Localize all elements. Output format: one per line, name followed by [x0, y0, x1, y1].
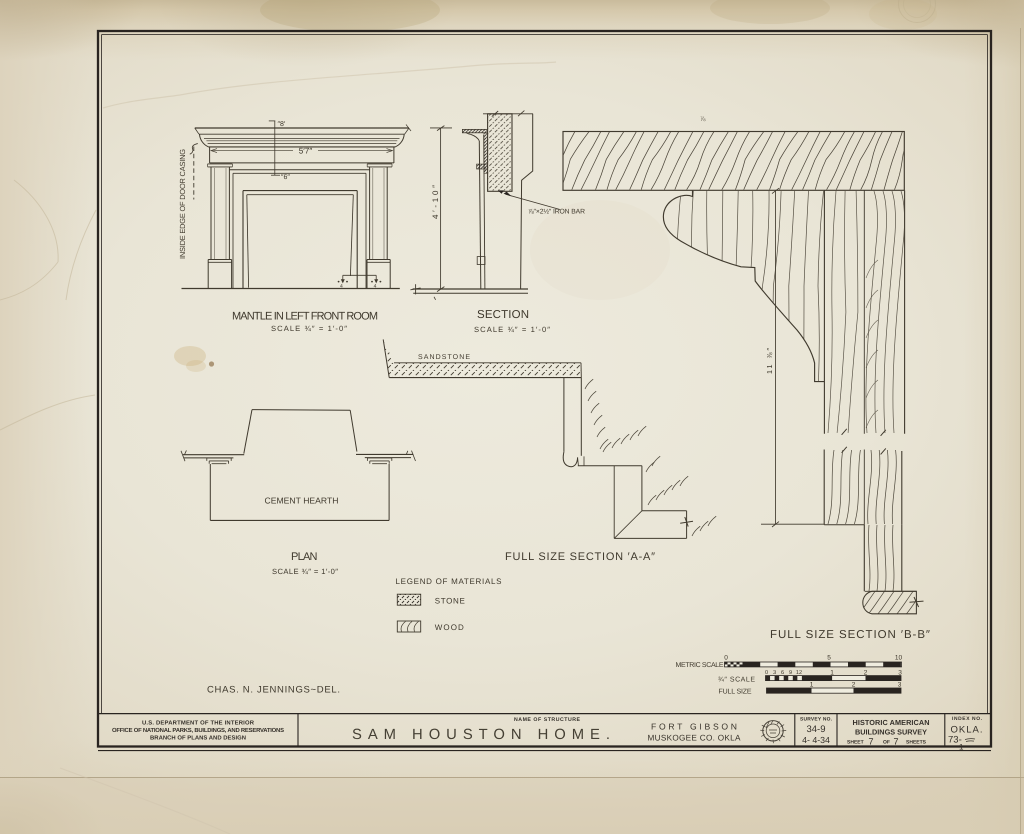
svg-text:10: 10 — [895, 655, 903, 662]
svg-text:2: 2 — [864, 669, 868, 676]
svg-text:FULL SIZE SECTION ′B-B″: FULL SIZE SECTION ′B-B″ — [770, 629, 930, 641]
svg-text:PLAN: PLAN — [291, 551, 319, 563]
svg-text:FORT GIBSON: FORT GIBSON — [651, 721, 737, 731]
svg-text:SHEET: SHEET — [847, 739, 864, 745]
svg-text:3: 3 — [898, 669, 902, 676]
svg-text:5: 5 — [827, 655, 831, 662]
svg-text:FULL SIZE: FULL SIZE — [719, 689, 752, 696]
svg-text:SANDSTONE: SANDSTONE — [418, 354, 470, 361]
svg-text:WOOD: WOOD — [435, 623, 464, 632]
svg-text:SECTION: SECTION — [477, 309, 531, 321]
svg-text:OF: OF — [883, 739, 890, 745]
svg-text:2: 2 — [852, 682, 856, 689]
svg-text:⅞: ⅞ — [700, 116, 706, 123]
svg-text:NAME OF STRUCTURE: NAME OF STRUCTURE — [514, 717, 581, 723]
svg-text:BRANCH OF PLANS AND DESIGN: BRANCH OF PLANS AND DESIGN — [150, 734, 246, 741]
svg-text:FULL SIZE SECTION ′A-A″: FULL SIZE SECTION ′A-A″ — [505, 551, 655, 563]
svg-text:STONE: STONE — [435, 596, 465, 605]
svg-text:7: 7 — [868, 737, 873, 747]
svg-text:5′7″: 5′7″ — [299, 147, 313, 156]
svg-text:CHAS. N. JENNINGS~DEL.: CHAS. N. JENNINGS~DEL. — [207, 684, 340, 695]
svg-text:3: 3 — [773, 670, 776, 676]
svg-text:1: 1 — [959, 742, 964, 751]
svg-text:1: 1 — [810, 682, 814, 689]
svg-text:″8′: ″8′ — [278, 121, 286, 128]
svg-text:OFFICE OF NATIONAL PARKS, BUIL: OFFICE OF NATIONAL PARKS, BUILDINGS, AND… — [112, 727, 284, 734]
svg-text:METRIC SCALE: METRIC SCALE — [676, 662, 724, 669]
svg-text:HISTORIC AMERICAN: HISTORIC AMERICAN — [853, 718, 930, 727]
svg-text:SCALE ¾″ = 1′-0″: SCALE ¾″ = 1′-0″ — [271, 324, 347, 333]
svg-text:U.S. DEPARTMENT OF THE INTERIO: U.S. DEPARTMENT OF THE INTERIOR — [142, 720, 255, 727]
svg-text:CEMENT HEARTH: CEMENT HEARTH — [265, 496, 339, 506]
svg-text:SURVEY NO.: SURVEY NO. — [800, 716, 833, 722]
svg-text:SAM HOUSTON HOME.: SAM HOUSTON HOME. — [352, 727, 610, 743]
svg-text:6: 6 — [781, 670, 784, 676]
svg-text:34-9: 34-9 — [806, 724, 825, 735]
svg-text:7: 7 — [893, 737, 898, 747]
svg-text:BUILDINGS SURVEY: BUILDINGS SURVEY — [855, 728, 927, 737]
svg-text:MUSKOGEE CO. OKLA: MUSKOGEE CO. OKLA — [648, 734, 742, 743]
svg-text:4′-10″: 4′-10″ — [431, 185, 440, 219]
svg-text:INDEX NO.: INDEX NO. — [952, 716, 983, 722]
svg-text:0: 0 — [765, 670, 768, 676]
svg-text:¾″ SCALE: ¾″ SCALE — [718, 676, 755, 683]
svg-text:1: 1 — [830, 669, 834, 676]
svg-text:11 ⅞″: 11 ⅞″ — [765, 348, 774, 374]
svg-text:12: 12 — [796, 670, 802, 676]
svg-text:0: 0 — [724, 655, 728, 662]
svg-text:SHEETS: SHEETS — [906, 739, 927, 745]
svg-text:MANTLE IN LEFT FRONT ROOM: MANTLE IN LEFT FRONT ROOM — [232, 311, 378, 323]
svg-text:INSIDE EDGE OF DOOR CASING: INSIDE EDGE OF DOOR CASING — [178, 149, 187, 259]
svg-text:SCALE ¾″ = 1′-0″: SCALE ¾″ = 1′-0″ — [474, 325, 550, 334]
svg-text:LEGEND OF MATERIALS: LEGEND OF MATERIALS — [396, 577, 502, 586]
svg-text:4- 4-34: 4- 4-34 — [802, 735, 830, 745]
svg-text:⅞″×2½″ IRON BAR: ⅞″×2½″ IRON BAR — [528, 208, 585, 215]
svg-text:″6″: ″6″ — [281, 174, 290, 181]
svg-text:9: 9 — [789, 670, 792, 676]
svg-text:SCALE ¾″ = 1′-0″: SCALE ¾″ = 1′-0″ — [272, 567, 338, 576]
svg-text:3: 3 — [898, 682, 902, 689]
